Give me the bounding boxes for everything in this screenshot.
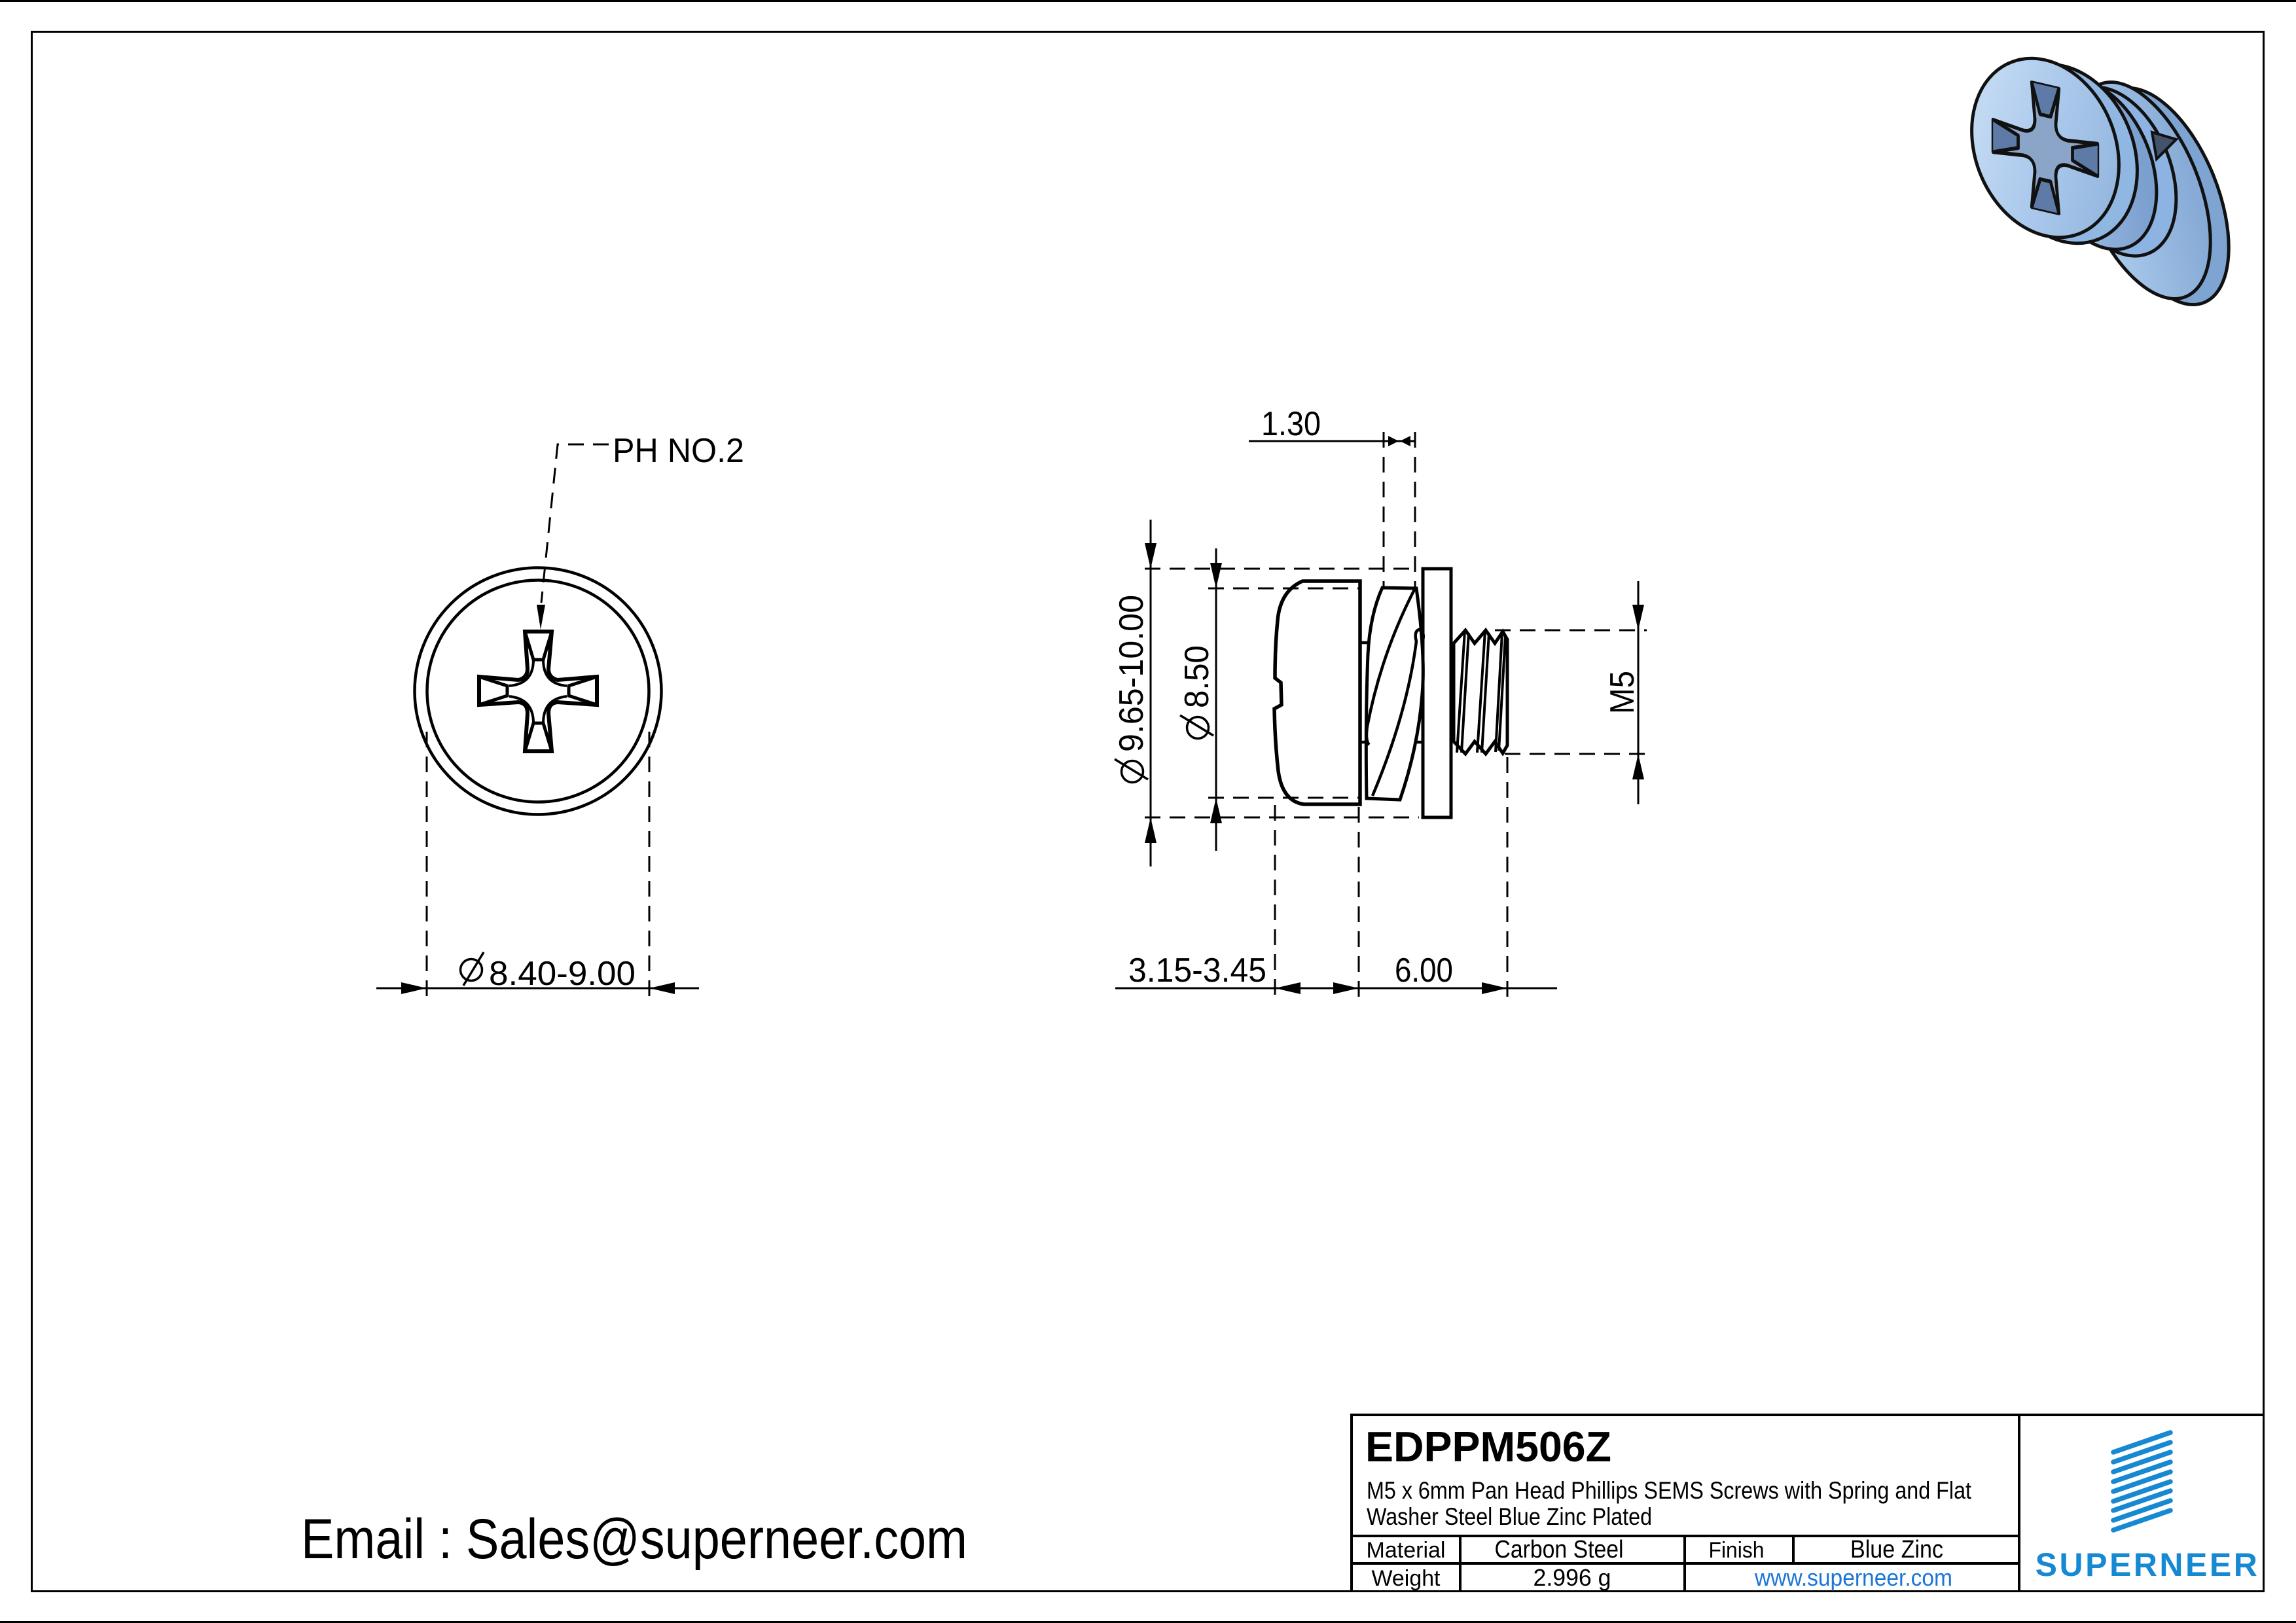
svg-text:8.50: 8.50 (1178, 645, 1216, 708)
svg-text:2.996 g: 2.996 g (1534, 1564, 1611, 1591)
svg-text:6.00: 6.00 (1395, 952, 1453, 990)
svg-text:Washer Steel Blue Zinc Plated: Washer Steel Blue Zinc Plated (1367, 1503, 1652, 1530)
svg-text:3.15-3.45: 3.15-3.45 (1128, 952, 1266, 990)
svg-text:SUPERNEER: SUPERNEER (2036, 1546, 2260, 1583)
svg-text:M5 x 6mm Pan Head Phillips SEM: M5 x 6mm Pan Head Phillips SEMS Screws w… (1367, 1477, 1972, 1504)
svg-text:Carbon Steel: Carbon Steel (1495, 1536, 1624, 1563)
svg-text:Weight: Weight (1372, 1566, 1441, 1591)
svg-text:EDPPM506Z: EDPPM506Z (1365, 1423, 1611, 1471)
svg-text:Finish: Finish (1709, 1538, 1765, 1563)
svg-text:Email : Sales@superneer.com: Email : Sales@superneer.com (301, 1508, 967, 1571)
svg-text:Blue Zinc: Blue Zinc (1850, 1536, 1943, 1563)
svg-text:Material: Material (1367, 1538, 1446, 1563)
svg-text:9.65-10.00: 9.65-10.00 (1113, 595, 1151, 752)
svg-text:M5: M5 (1604, 671, 1641, 714)
svg-text:PH NO.2: PH NO.2 (613, 432, 744, 470)
svg-text:8.40-9.00: 8.40-9.00 (489, 955, 636, 993)
svg-text:1.30: 1.30 (1261, 405, 1321, 443)
svg-text:www.superneer.com: www.superneer.com (1754, 1564, 1952, 1591)
